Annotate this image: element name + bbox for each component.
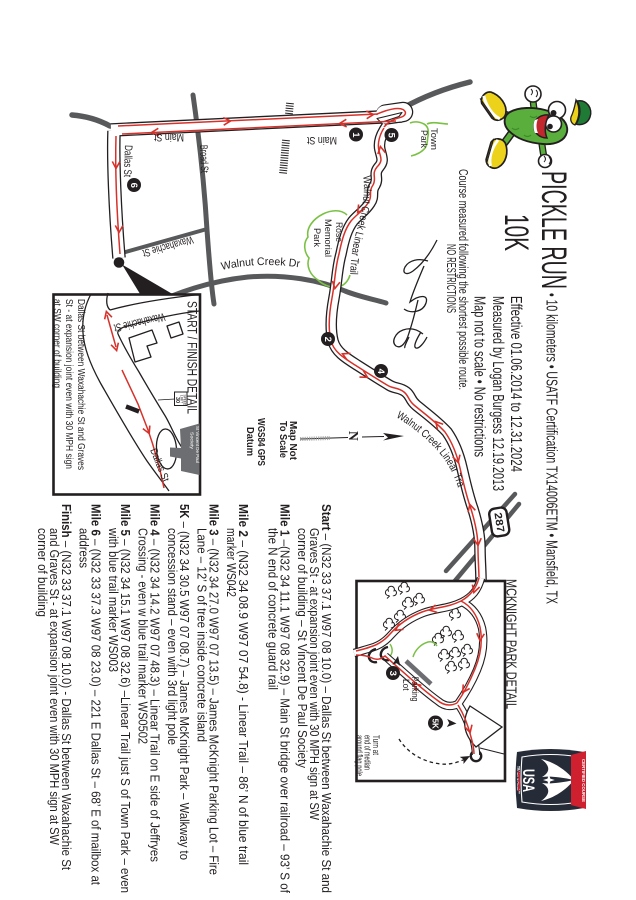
svg-text:PICKLE RUN: PICKLE RUN bbox=[534, 171, 573, 289]
svg-text:Main St: Main St bbox=[307, 134, 337, 146]
svg-text:6: 6 bbox=[128, 183, 139, 188]
svg-text:Park: Park bbox=[311, 228, 322, 247]
svg-text:Lane – 12’ S of tree inside co: Lane – 12’ S of tree inside concrete isl… bbox=[195, 528, 210, 742]
svg-text:at SW corner of building: at SW corner of building bbox=[51, 299, 62, 388]
svg-text:Memorial: Memorial bbox=[322, 219, 333, 257]
svg-text:Main St: Main St bbox=[154, 131, 184, 143]
svg-text:• 10 kilometers • USATF Certif: • 10 kilometers • USATF Certification TX… bbox=[543, 293, 560, 604]
svg-text:corner of building: corner of building bbox=[35, 528, 50, 617]
svg-text:To Scale: To Scale bbox=[277, 421, 289, 458]
svg-text:marker WS042: marker WS042 bbox=[224, 528, 239, 597]
svg-text:MCKNIGHT PARK DETAIL: MCKNIGHT PARK DETAIL bbox=[503, 579, 520, 709]
svg-text:30: 30 bbox=[174, 397, 180, 403]
svg-text:concession stand – even with 3: concession stand – even with 3rd light p… bbox=[165, 528, 180, 745]
svg-text:Lot: Lot bbox=[400, 679, 411, 691]
svg-text:1: 1 bbox=[350, 132, 361, 138]
svg-text:address: address bbox=[77, 528, 92, 568]
svg-text:Dallas St between Waxahachie S: Dallas St between Waxahachie St and Grav… bbox=[75, 299, 86, 470]
svg-text:2: 2 bbox=[322, 337, 333, 342]
svg-text:St - at expansion joint even w: St - at expansion joint even with 30 MPH… bbox=[63, 299, 74, 469]
svg-text:corner of building – St Vincen: corner of building – St Vincent De Paul … bbox=[295, 528, 310, 768]
svg-text:Effective 01.06.2014 to 12.31.: Effective 01.06.2014 to 12.31.2024 bbox=[507, 296, 524, 472]
svg-text:Rose: Rose bbox=[333, 222, 344, 242]
svg-text:Society: Society bbox=[189, 432, 195, 450]
svg-text:the N end of concrete guard ra: the N end of concrete guard rail bbox=[266, 528, 281, 690]
svg-text:5K: 5K bbox=[431, 719, 440, 729]
svg-text:10K: 10K bbox=[497, 214, 535, 251]
svg-text:N: N bbox=[346, 431, 361, 441]
svg-text:Dallas St: Dallas St bbox=[121, 145, 134, 177]
svg-text:4: 4 bbox=[375, 369, 386, 375]
svg-text:Measured by Logan Burgess 12.1: Measured by Logan Burgess 12.19.2013 bbox=[489, 296, 506, 491]
svg-text:Map not to scale • No restrict: Map not to scale • No restrictions bbox=[471, 296, 488, 457]
svg-text:Broad St: Broad St bbox=[197, 145, 210, 173]
svg-text:CERTIFIED COURSE: CERTIFIED COURSE bbox=[581, 759, 586, 802]
svg-text:St Vincent De Paul: St Vincent De Paul bbox=[194, 426, 200, 463]
svg-text:Crossing - even w blue trail m: Crossing - even w blue trail marker WS05… bbox=[136, 528, 151, 744]
svg-text:around flag pole: around flag pole bbox=[354, 735, 365, 776]
svg-text:5: 5 bbox=[385, 133, 396, 139]
svg-text:Park: Park bbox=[418, 130, 429, 148]
svg-text:3: 3 bbox=[387, 671, 398, 676]
svg-text:Datum: Datum bbox=[244, 427, 256, 456]
svg-text:with blue trail marker WS003: with blue trail marker WS003 bbox=[106, 527, 121, 672]
svg-text:NO RESTRICTIONS: NO RESTRICTIONS bbox=[444, 244, 458, 313]
